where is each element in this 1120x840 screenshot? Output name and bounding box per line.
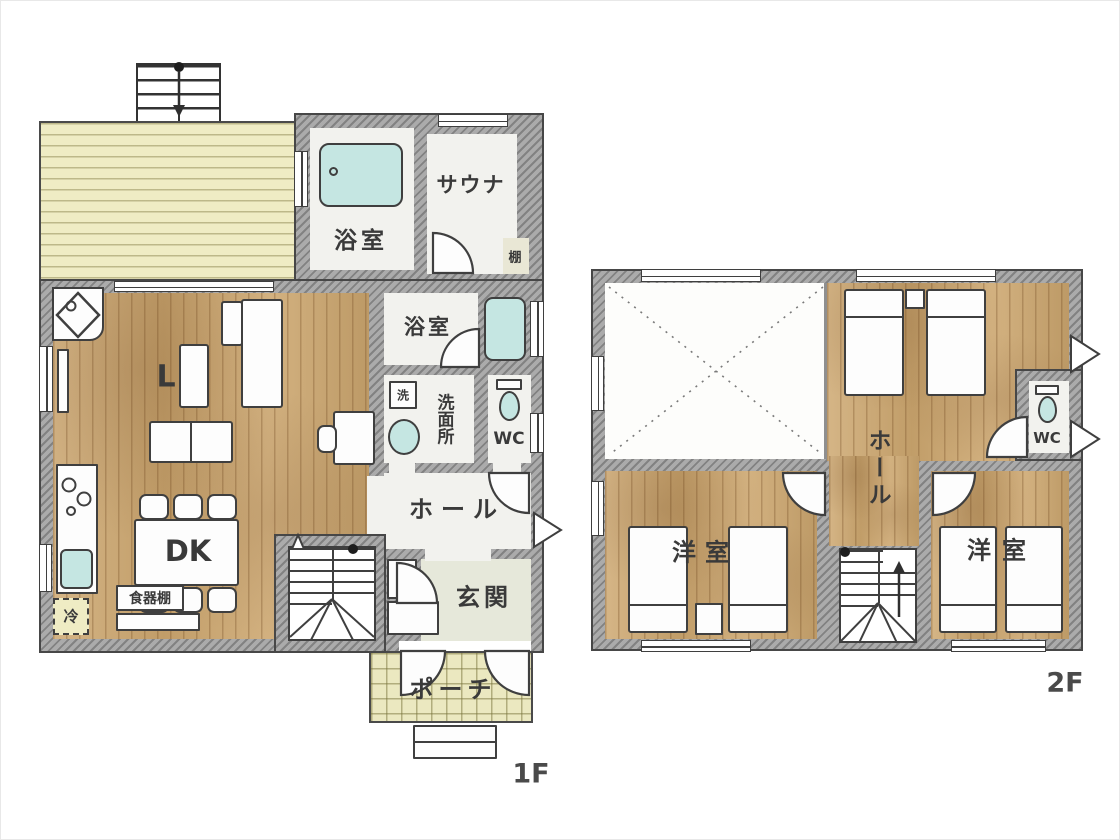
tv-board — [57, 349, 69, 413]
room-label-porch: ポーチ — [410, 670, 497, 705]
bathtub-mid — [484, 297, 526, 361]
desk — [333, 411, 375, 465]
room-label-washroom: 洗面所 — [432, 394, 457, 445]
stove-hearth-pad — [52, 287, 104, 341]
window-2f-bottom-right — [951, 640, 1046, 652]
room-label-bedroom-left: 洋室 — [672, 533, 738, 568]
floor-label-1f: 1F — [512, 759, 549, 790]
room-label-bathroom-top: 浴室 — [334, 221, 388, 255]
toilet-bowl-1f — [499, 391, 520, 421]
window-sauna-top — [438, 114, 508, 127]
window-2f-bottom-left — [641, 640, 751, 652]
stairs-1f-treads-left — [290, 548, 332, 606]
window-kitchen-left — [39, 544, 52, 592]
label-cupboard: 食器棚 — [129, 588, 171, 608]
stairs-2f-treads-left — [841, 550, 878, 608]
toilet-tank-1f — [496, 379, 522, 390]
entrance-storage — [387, 601, 439, 635]
dining-chair — [173, 494, 203, 520]
room-label-bedroom-right: 洋室 — [967, 531, 1037, 566]
opening-wc-1f — [493, 463, 521, 473]
washroom-sink — [388, 419, 420, 455]
room-label-entrance: 玄関 — [456, 578, 512, 613]
stairs-2f-landing — [883, 550, 915, 570]
floorplan-canvas: 浴室 サウナ 棚 浴室 洗 洗面所 WC ホール 玄関 ポーチ L DK 冷 食… — [0, 0, 1120, 840]
dining-chair — [207, 494, 237, 520]
coffee-table — [179, 344, 209, 408]
cupboard-counter — [116, 613, 200, 631]
window-wc-right — [530, 413, 544, 453]
room-label-hall-1f: ホール — [409, 490, 505, 525]
shoe-cabinet — [387, 559, 417, 599]
dining-chair — [207, 587, 237, 613]
room-label-bathroom-mid: 浴室 — [404, 311, 452, 341]
sofa-l-vertical — [241, 299, 283, 408]
sofa-cushion-line — [190, 423, 192, 461]
window-2f-top-right — [856, 269, 996, 282]
window-2f-top-left — [641, 269, 761, 282]
opening-hall-entrance — [425, 549, 491, 561]
window-2f-left-upper — [591, 356, 604, 411]
opening-living-hall — [367, 476, 386, 534]
corridor-sauna — [427, 238, 503, 274]
sliding-door-deck — [114, 281, 274, 292]
room-label-wc-2f: WC — [1033, 429, 1061, 447]
bathtub-top-drain — [329, 167, 338, 176]
sofa-l-corner — [221, 301, 243, 346]
stairs-1f-treads-right — [332, 548, 374, 601]
room-label-shelf: 棚 — [508, 247, 521, 266]
window-bath-left — [294, 151, 308, 207]
dining-chair — [139, 494, 169, 520]
bed — [926, 289, 986, 396]
nightstand — [695, 603, 723, 635]
room-label-hall-2f: ホール — [860, 429, 894, 510]
window-living-left — [39, 346, 53, 412]
floor-label-2f: 2F — [1046, 668, 1083, 699]
bed — [844, 289, 904, 396]
desk-chair — [317, 425, 337, 453]
room-label-wc-1f: WC — [493, 429, 524, 449]
entrance-step-line — [415, 741, 495, 743]
kitchen-sink — [60, 549, 93, 589]
nightstand — [905, 289, 925, 309]
room-label-living: L — [156, 360, 175, 395]
exterior-stairs-divider — [178, 65, 180, 121]
label-fridge: 冷 — [63, 606, 78, 627]
opening-washroom — [389, 463, 415, 473]
toilet-bowl-2f — [1038, 396, 1057, 423]
label-washing-machine: 洗 — [397, 387, 409, 404]
void-atrium — [605, 283, 827, 459]
window-bath-right — [530, 301, 544, 357]
toilet-tank-2f — [1035, 385, 1059, 395]
wood-deck — [39, 121, 299, 289]
window-2f-left-lower — [591, 481, 604, 536]
room-label-dk: DK — [165, 534, 212, 568]
room-label-sauna: サウナ — [437, 169, 506, 199]
